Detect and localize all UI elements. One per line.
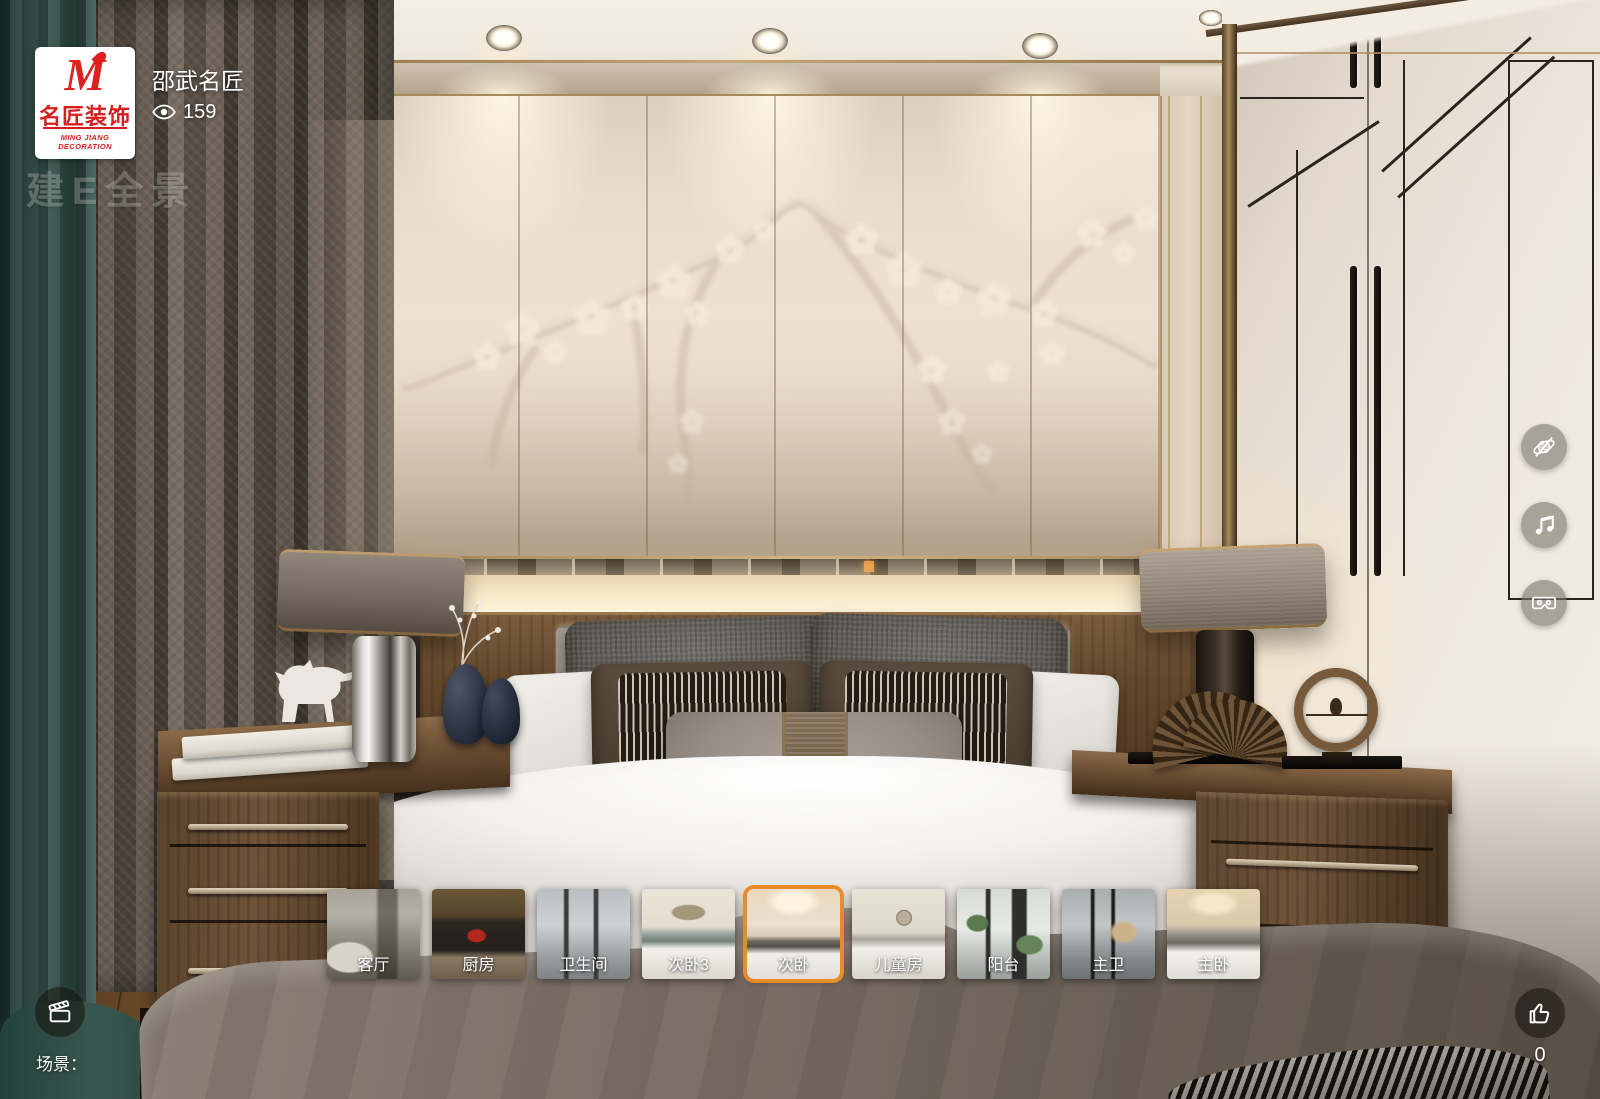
- drawer-handle: [188, 888, 348, 894]
- drawer-seam: [170, 844, 365, 847]
- wardrobe-inlay-line: [1403, 60, 1405, 576]
- views-count: 159: [183, 101, 216, 124]
- scene-thumbnail-bathroom[interactable]: 卫生间: [537, 889, 630, 979]
- ceiling-spotlight: [748, 25, 792, 57]
- ring-ornament-stand: [1322, 752, 1352, 766]
- like-count: 0: [1515, 1044, 1565, 1067]
- background-music-button[interactable]: [1521, 502, 1567, 548]
- carved-feature-wall: [392, 96, 1160, 558]
- wardrobe-inlay-line: [1240, 97, 1364, 99]
- drawer-seam: [1211, 840, 1433, 851]
- bronze-column-trim: [1222, 24, 1237, 624]
- clapperboard-icon: [46, 998, 74, 1026]
- watermark: 建E全景: [26, 160, 197, 215]
- scene-thumbnail-label: 次卧3: [642, 951, 735, 975]
- scene-thumbnail-label: 厨房: [432, 951, 525, 975]
- scene-thumbnail-label: 次卧: [747, 951, 840, 975]
- scene-label: 场景：: [36, 1050, 87, 1075]
- wardrobe-ceiling-corner: [1222, 0, 1600, 72]
- music-note-icon: [1531, 512, 1557, 538]
- drawer-handle: [1226, 859, 1418, 872]
- scene-thumbnail-kids-room[interactable]: 儿童房: [852, 889, 945, 979]
- scene-thumbnail-bedroom3[interactable]: 次卧3: [642, 889, 735, 979]
- page-title: 邵武名匠: [152, 62, 244, 96]
- scene-thumbnail-living-room[interactable]: 客厅: [327, 889, 420, 979]
- wardrobe-handle: [1350, 266, 1357, 576]
- ceiling-spotlight: [1018, 30, 1062, 62]
- gyroscope-toggle-button[interactable]: [1521, 424, 1567, 470]
- scene-thumbnail-label: 儿童房: [852, 951, 945, 975]
- scene-thumbnail-label: 主卧: [1167, 951, 1260, 975]
- mirror-strip: [396, 559, 1222, 575]
- brand-logo-mark: M: [35, 49, 135, 101]
- blossom-branch-decor: [432, 596, 532, 668]
- left-lamp-base: [352, 636, 416, 762]
- brand-logo[interactable]: M 名匠装饰 MING JIANG DECORATION: [35, 47, 135, 159]
- drawer-handle: [188, 824, 348, 830]
- wardrobe-inlay-diagonal: [1247, 120, 1379, 207]
- horse-sculpture: [272, 652, 358, 728]
- wall-transom-strip: [392, 63, 1160, 96]
- like-button[interactable]: [1515, 988, 1565, 1038]
- wardrobe-inlay-line: [1296, 150, 1298, 576]
- owl-figurine: [1330, 698, 1342, 715]
- brand-subtitle: MING JIANG DECORATION: [35, 133, 135, 151]
- eye-icon: [152, 104, 176, 120]
- thumbs-up-icon: [1526, 999, 1554, 1027]
- scene-thumbnail-master-bedroom[interactable]: 主卧: [1167, 889, 1260, 979]
- scene-thumbnail-label: 客厅: [327, 951, 420, 975]
- gyroscope-icon: [1531, 434, 1557, 460]
- right-lamp-shade: [1139, 543, 1328, 633]
- view-counter: 159: [152, 100, 216, 124]
- mirror-reflection-chip: [864, 561, 874, 572]
- wall-shading: [392, 96, 1160, 558]
- scene-thumbnail-master-bath[interactable]: 主卫: [1062, 889, 1155, 979]
- ceiling-spotlight: [482, 22, 526, 54]
- scene-thumbnail-label: 主卫: [1062, 951, 1155, 975]
- wall-side-return: [1160, 96, 1222, 558]
- brand-divider: [43, 127, 127, 129]
- scene-thumbnail-label: 阳台: [957, 951, 1050, 975]
- wardrobe-gold-trim: [1237, 52, 1600, 54]
- scene-thumbnail-label: 卫生间: [537, 951, 630, 975]
- vr-goggles-icon: [1531, 590, 1557, 616]
- scene-thumbnail-bedroom-active[interactable]: 次卧: [747, 889, 840, 979]
- vr-mode-button[interactable]: [1521, 580, 1567, 626]
- scene-list-button[interactable]: [35, 987, 85, 1037]
- scene-thumbnail-balcony[interactable]: 阳台: [957, 889, 1050, 979]
- panorama-viewer: 建E全景 M 名匠装饰 MING JIANG DECORATION 邵武名匠 1…: [0, 0, 1600, 1099]
- scene-thumbnail-kitchen[interactable]: 厨房: [432, 889, 525, 979]
- wardrobe-handle: [1374, 266, 1381, 576]
